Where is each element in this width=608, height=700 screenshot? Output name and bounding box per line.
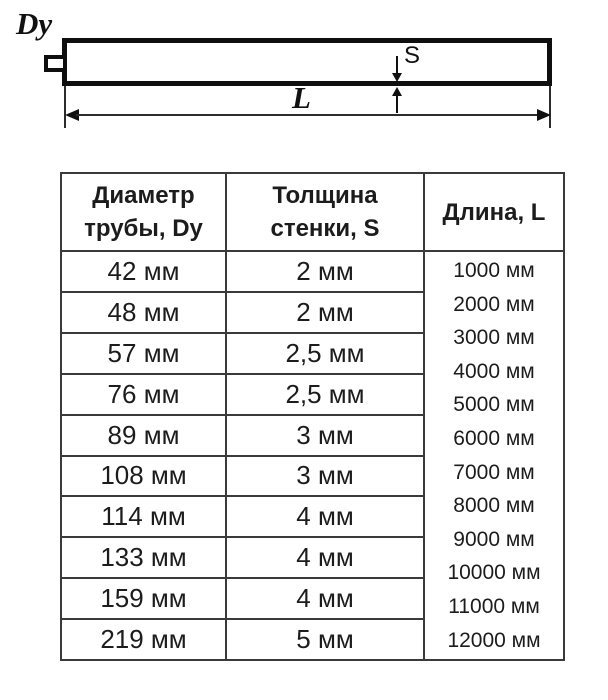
- extension-line-right: [549, 86, 551, 128]
- length-value: 4000 мм: [425, 355, 563, 389]
- diameter-cell: 108 мм: [61, 456, 226, 497]
- pipe-outline: [62, 38, 552, 86]
- arrow-down-icon: [392, 73, 402, 82]
- column-header-diameter-line1: Диаметр: [62, 179, 225, 212]
- length-value: 8000 мм: [425, 489, 563, 523]
- length-value: 7000 мм: [425, 456, 563, 490]
- table-row: 42 мм 2 мм 1000 мм 2000 мм 3000 мм 4000 …: [61, 251, 564, 292]
- length-value: 2000 мм: [425, 288, 563, 322]
- diameter-cell: 42 мм: [61, 251, 226, 292]
- diameter-cell: 89 мм: [61, 415, 226, 456]
- diameter-cell: 48 мм: [61, 292, 226, 333]
- thickness-cell: 2 мм: [226, 251, 424, 292]
- thickness-cell: 4 мм: [226, 578, 424, 619]
- column-header-diameter-line2: трубы, Dy: [62, 212, 225, 245]
- thickness-dimension-line-upper: [396, 56, 398, 73]
- column-header-thickness: Толщина стенки, S: [226, 173, 424, 251]
- diameter-cell: 76 мм: [61, 374, 226, 415]
- length-value: 6000 мм: [425, 422, 563, 456]
- column-header-thickness-line2: стенки, S: [227, 212, 423, 245]
- arrow-right-icon: [537, 109, 551, 121]
- length-value: 3000 мм: [425, 321, 563, 355]
- lengths-cell: 1000 мм 2000 мм 3000 мм 4000 мм 5000 мм …: [424, 251, 564, 660]
- diameter-cell: 57 мм: [61, 333, 226, 374]
- length-value: 9000 мм: [425, 523, 563, 557]
- pipe-size-table: Диаметр трубы, Dy Толщина стенки, S Длин…: [60, 172, 565, 661]
- thickness-cell: 3 мм: [226, 415, 424, 456]
- length-value: 5000 мм: [425, 388, 563, 422]
- length-value: 12000 мм: [425, 624, 563, 658]
- pipe-diameter-label: Dy: [16, 6, 52, 42]
- thickness-cell: 2,5 мм: [226, 374, 424, 415]
- diameter-cell: 114 мм: [61, 496, 226, 537]
- wall-thickness-label: S: [404, 42, 420, 70]
- thickness-cell: 4 мм: [226, 496, 424, 537]
- pipe-diagram: Dy S L: [0, 0, 608, 145]
- thickness-cell: 2,5 мм: [226, 333, 424, 374]
- arrow-up-icon: [392, 87, 402, 96]
- extension-line-left: [64, 86, 66, 128]
- column-header-diameter: Диаметр трубы, Dy: [61, 173, 226, 251]
- pipe-stub: [44, 55, 67, 72]
- length-value: 11000 мм: [425, 590, 563, 624]
- pipe-length-label: L: [292, 80, 311, 116]
- column-header-thickness-line1: Толщина: [227, 179, 423, 212]
- thickness-cell: 2 мм: [226, 292, 424, 333]
- table-header-row: Диаметр трубы, Dy Толщина стенки, S Длин…: [61, 173, 564, 251]
- length-value: 10000 мм: [425, 556, 563, 590]
- thickness-dimension-line-lower: [396, 96, 398, 113]
- length-value: 1000 мм: [425, 254, 563, 288]
- thickness-cell: 4 мм: [226, 537, 424, 578]
- diameter-cell: 219 мм: [61, 619, 226, 660]
- column-header-length: Длина, L: [424, 173, 564, 251]
- diameter-cell: 159 мм: [61, 578, 226, 619]
- thickness-cell: 3 мм: [226, 456, 424, 497]
- diameter-cell: 133 мм: [61, 537, 226, 578]
- thickness-cell: 5 мм: [226, 619, 424, 660]
